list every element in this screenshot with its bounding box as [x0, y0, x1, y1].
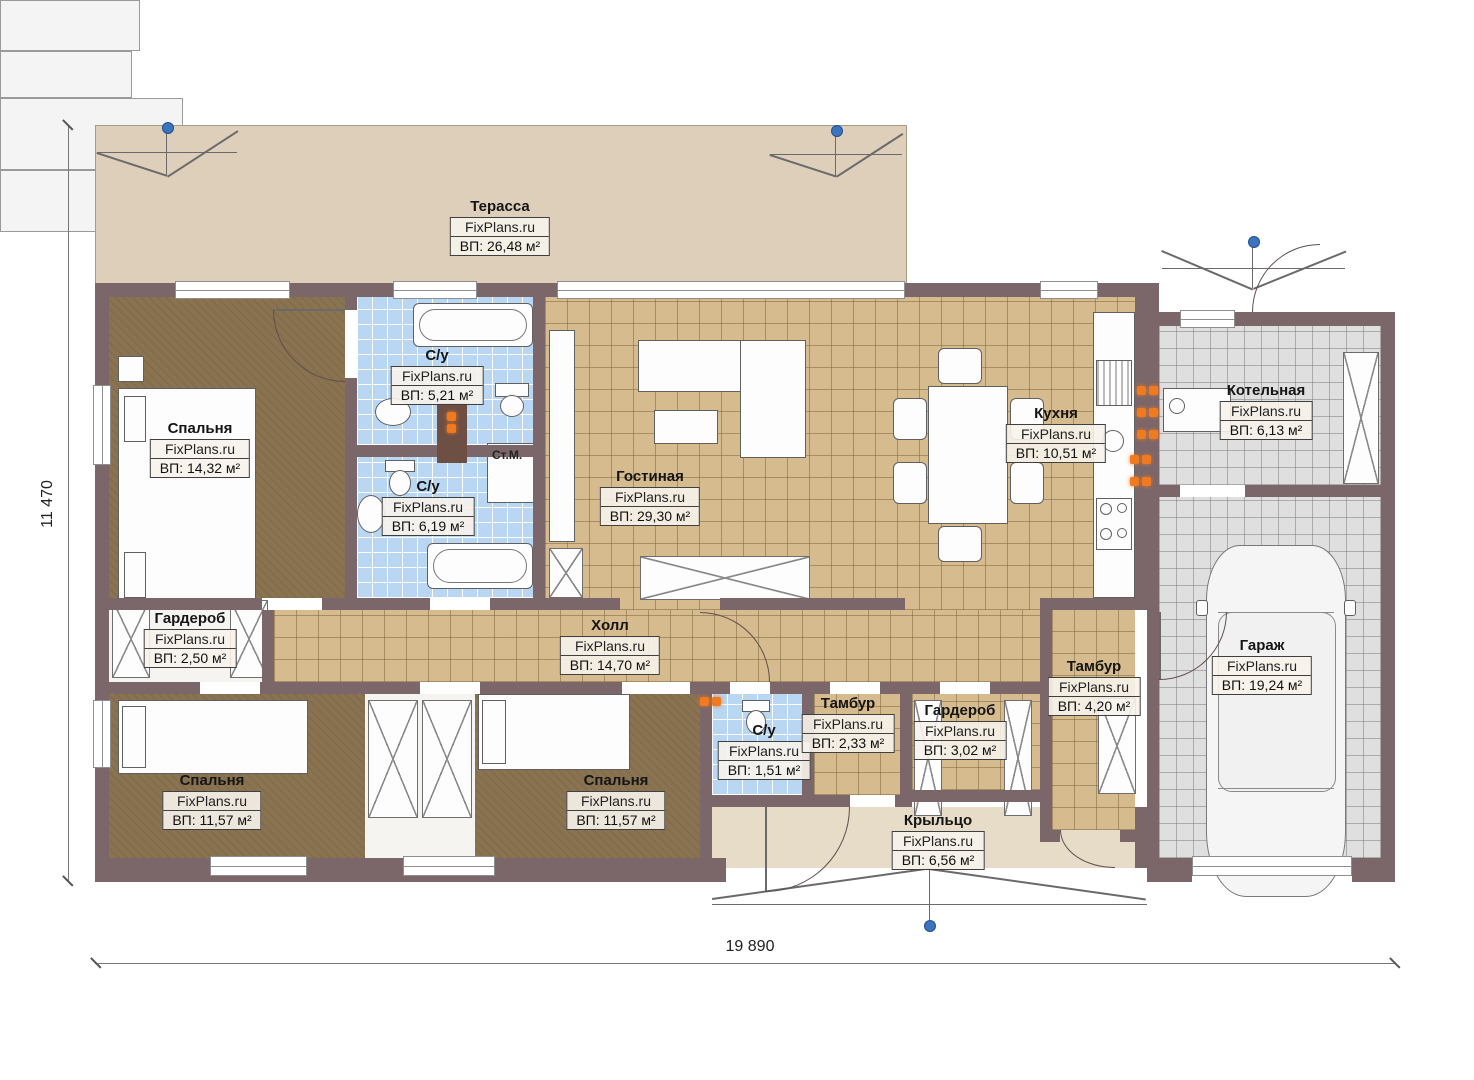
- wall-segment: [712, 795, 814, 807]
- wall-segment: [1120, 830, 1135, 842]
- single-bed: [118, 700, 308, 774]
- room-label-vestibule-2: Тамбур FixPlans.ru ВП: 4,20 м²: [1048, 658, 1141, 716]
- room-name: Спальня: [150, 420, 250, 437]
- wall-segment: [900, 694, 912, 807]
- room-name: Спальня: [162, 772, 261, 789]
- room-label-bath-2: С/у FixPlans.ru ВП: 6,19 м²: [382, 478, 475, 536]
- room-area: ВП: 14,70 м²: [561, 656, 659, 674]
- room-info-box: FixPlans.ru ВП: 6,13 м²: [1220, 401, 1313, 440]
- room-info-box: FixPlans.ru ВП: 14,70 м²: [560, 636, 660, 675]
- room-area: ВП: 11,57 м²: [163, 811, 260, 829]
- window: [210, 856, 307, 876]
- room-label-living-room: Гостиная FixPlans.ru ВП: 29,30 м²: [600, 468, 700, 526]
- canopy-line: [929, 868, 930, 920]
- room-label-boiler-room: Котельная FixPlans.ru ВП: 6,13 м²: [1220, 382, 1313, 440]
- wall-segment: [880, 682, 912, 694]
- room-label-porch: Крыльцо FixPlans.ru ВП: 6,56 м²: [892, 812, 985, 870]
- room-info-box: FixPlans.ru ВП: 10,51 м²: [1006, 424, 1106, 463]
- watermark: FixPlans.ru: [893, 832, 984, 851]
- cabinet: [549, 548, 583, 598]
- watermark: FixPlans.ru: [915, 722, 1006, 741]
- wall-segment: [1381, 312, 1395, 882]
- bathtub: [413, 303, 533, 347]
- pillow: [124, 552, 146, 598]
- window: [175, 281, 290, 299]
- sofa-chaise: [740, 340, 806, 458]
- wall-segment: [345, 297, 357, 310]
- wall-segment: [814, 795, 850, 807]
- watermark: FixPlans.ru: [1213, 657, 1311, 676]
- wall-segment: [1040, 598, 1135, 610]
- room-info-box: FixPlans.ru ВП: 2,33 м²: [802, 714, 895, 753]
- radiator: [1137, 386, 1158, 395]
- wall-segment: [912, 790, 1040, 802]
- room-info-box: FixPlans.ru ВП: 5,21 м²: [391, 366, 484, 405]
- wall-segment: [480, 682, 622, 694]
- wall-segment: [700, 694, 712, 858]
- chair: [938, 526, 982, 562]
- room-info-box: FixPlans.ru ВП: 4,20 м²: [1048, 677, 1141, 716]
- wall-segment: [720, 598, 905, 610]
- wall-segment: [1147, 858, 1192, 882]
- window: [1040, 281, 1098, 299]
- room-area: ВП: 2,33 м²: [803, 734, 894, 752]
- burner: [1100, 503, 1112, 515]
- roof-line: [770, 154, 902, 155]
- wardrobe-cabinet: [368, 700, 418, 818]
- window: [403, 856, 495, 876]
- radiator: [1137, 408, 1158, 417]
- room-name: Терасса: [450, 198, 550, 215]
- wardrobe-cabinet: [422, 700, 472, 818]
- tv-stand: [640, 556, 810, 600]
- wall-segment: [109, 598, 262, 610]
- room-label-terrace: Терасса FixPlans.ru ВП: 26,48 м²: [450, 198, 550, 256]
- roof-mark-left: [0, 0, 140, 51]
- room-info-box: FixPlans.ru ВП: 14,32 м²: [150, 439, 250, 478]
- roof-marker-dot: [924, 920, 936, 932]
- room-name: Спальня: [566, 772, 665, 789]
- canopy-valley-line: [712, 868, 929, 900]
- boiler-dial: [1169, 398, 1185, 414]
- watermark: FixPlans.ru: [561, 637, 659, 656]
- cabinet: [1343, 352, 1379, 484]
- room-name: Гардероб: [144, 610, 237, 627]
- room-area: ВП: 2,50 м²: [145, 649, 236, 667]
- car-rear-window: [1218, 788, 1334, 789]
- dimension-width: 19 890: [705, 938, 795, 956]
- canopy-valley-line: [929, 868, 1146, 900]
- door-arc: [765, 807, 850, 892]
- room-name: С/у: [382, 478, 475, 495]
- room-name: Котельная: [1220, 382, 1313, 399]
- wall-segment: [109, 682, 200, 694]
- room-name: Гараж: [1212, 637, 1312, 654]
- pillow: [482, 700, 506, 764]
- room-name: Кухня: [1006, 405, 1106, 422]
- roof-mark-right: [0, 51, 132, 98]
- watermark: FixPlans.ru: [803, 715, 894, 734]
- dimension-height: 11 470: [39, 464, 57, 544]
- watermark: FixPlans.ru: [163, 792, 260, 811]
- room-area: ВП: 3,02 м²: [915, 741, 1006, 759]
- watermark: FixPlans.ru: [151, 440, 249, 459]
- wall-segment: [895, 795, 912, 807]
- room-info-box: FixPlans.ru ВП: 19,24 м²: [1212, 656, 1312, 695]
- wall-segment: [1135, 807, 1147, 868]
- chair: [938, 348, 982, 384]
- room-area: ВП: 6,56 м²: [893, 851, 984, 869]
- room-name: Гостиная: [600, 468, 700, 485]
- dimension-line-vertical: [68, 125, 69, 882]
- room-area: ВП: 11,57 м²: [567, 811, 664, 829]
- burner: [1117, 503, 1127, 513]
- terrace-glazing: [557, 281, 905, 299]
- window: [93, 700, 111, 768]
- watermark: FixPlans.ru: [1049, 678, 1140, 697]
- canopy-line: [1252, 244, 1253, 288]
- room-area: ВП: 10,51 м²: [1007, 444, 1105, 462]
- room-name: Холл: [560, 617, 660, 634]
- wall-segment: [345, 378, 357, 610]
- watermark: FixPlans.ru: [601, 488, 699, 507]
- fridge: [1096, 360, 1132, 406]
- pillow: [124, 396, 146, 442]
- burner: [1117, 528, 1127, 538]
- floor-plan: Ст.М.: [0, 0, 1474, 1080]
- window: [393, 281, 477, 299]
- pillow: [122, 706, 146, 768]
- room-label-hall: Холл FixPlans.ru ВП: 14,70 м²: [560, 617, 660, 675]
- room-label-garage: Гараж FixPlans.ru ВП: 19,24 м²: [1212, 637, 1312, 695]
- room-area: ВП: 29,30 м²: [601, 507, 699, 525]
- watermark: FixPlans.ru: [145, 630, 236, 649]
- car-windshield: [1218, 612, 1334, 613]
- wall-segment: [1147, 610, 1159, 858]
- roof-line: [166, 127, 167, 176]
- car-mirror: [1344, 600, 1356, 616]
- washing-machine-label: Ст.М.: [492, 448, 522, 462]
- watermark: FixPlans.ru: [392, 367, 483, 386]
- radiator: [447, 412, 456, 433]
- room-area: ВП: 1,51 м²: [719, 761, 810, 779]
- porch-floor: [712, 807, 1040, 868]
- room-name: Тамбур: [1048, 658, 1141, 675]
- room-label-bedroom-1: Спальня FixPlans.ru ВП: 14,32 м²: [150, 420, 250, 478]
- chair: [893, 462, 927, 504]
- wall-segment: [1147, 485, 1180, 497]
- toilet-bowl: [500, 395, 524, 417]
- room-name: Гардероб: [914, 702, 1007, 719]
- room-area: ВП: 4,20 м²: [1049, 697, 1140, 715]
- room-info-box: FixPlans.ru ВП: 6,19 м²: [382, 497, 475, 536]
- room-label-bath-1: С/у FixPlans.ru ВП: 5,21 м²: [391, 347, 484, 405]
- roof-marker-dot: [831, 125, 843, 137]
- watermark: FixPlans.ru: [567, 792, 664, 811]
- room-info-box: FixPlans.ru ВП: 2,50 м²: [144, 629, 237, 668]
- room-info-box: FixPlans.ru ВП: 1,51 м²: [718, 741, 811, 780]
- wall-segment: [95, 283, 109, 882]
- watermark: FixPlans.ru: [719, 742, 810, 761]
- wall-segment: [1352, 858, 1395, 882]
- wall-segment: [262, 610, 274, 682]
- watermark: FixPlans.ru: [383, 498, 474, 517]
- window: [93, 385, 111, 465]
- room-label-bedroom-2: Спальня FixPlans.ru ВП: 11,57 м²: [162, 772, 261, 830]
- radiator: [1130, 455, 1151, 464]
- room-info-box: FixPlans.ru ВП: 29,30 м²: [600, 487, 700, 526]
- chair: [1010, 462, 1044, 504]
- room-label-bath-3: С/у FixPlans.ru ВП: 1,51 м²: [718, 722, 811, 780]
- burner: [1100, 528, 1112, 540]
- nightstand: [118, 356, 144, 382]
- wall-segment: [1135, 283, 1159, 610]
- room-label-bedroom-3: Спальня FixPlans.ru ВП: 11,57 м²: [566, 772, 665, 830]
- wall-segment: [1245, 485, 1395, 497]
- wall-segment: [912, 682, 940, 694]
- room-name: Тамбур: [802, 695, 895, 712]
- room-area: ВП: 5,21 м²: [392, 386, 483, 404]
- room-area: ВП: 6,19 м²: [383, 517, 474, 535]
- watermark: FixPlans.ru: [1221, 402, 1312, 421]
- roof-line: [97, 152, 237, 153]
- room-info-box: FixPlans.ru ВП: 6,56 м²: [892, 831, 985, 870]
- room-info-box: FixPlans.ru ВП: 3,02 м²: [914, 721, 1007, 760]
- wall-segment: [1040, 610, 1052, 842]
- watermark: FixPlans.ru: [451, 218, 549, 237]
- wall-segment: [690, 682, 730, 694]
- shelf-unit: [549, 330, 575, 542]
- wall-segment: [322, 598, 430, 610]
- room-name: Крыльцо: [892, 812, 985, 829]
- wall-segment: [814, 682, 830, 694]
- wall-segment: [1040, 830, 1060, 842]
- room-name: С/у: [391, 347, 484, 364]
- room-area: ВП: 19,24 м²: [1213, 676, 1311, 694]
- bathtub: [427, 543, 533, 589]
- wall-segment: [990, 682, 1040, 694]
- room-area: ВП: 14,32 м²: [151, 459, 249, 477]
- wall-segment: [490, 598, 620, 610]
- radiator: [1130, 477, 1151, 486]
- wall-segment: [260, 682, 420, 694]
- room-info-box: FixPlans.ru ВП: 11,57 м²: [162, 791, 261, 830]
- room-info-box: FixPlans.ru ВП: 26,48 м²: [450, 217, 550, 256]
- radiator: [700, 697, 721, 706]
- room-name: С/у: [718, 722, 811, 739]
- dimension-line-horizontal: [95, 963, 1395, 964]
- watermark: FixPlans.ru: [1007, 425, 1105, 444]
- wall-segment: [770, 682, 814, 694]
- window: [1180, 310, 1235, 328]
- canopy-valley-line: [1161, 250, 1253, 290]
- room-label-wardrobe-1: Гардероб FixPlans.ru ВП: 2,50 м²: [144, 610, 237, 668]
- wall-segment: [533, 297, 545, 610]
- room-info-box: FixPlans.ru ВП: 11,57 м²: [566, 791, 665, 830]
- radiator: [1137, 430, 1158, 439]
- room-label-wardrobe-2: Гардероб FixPlans.ru ВП: 3,02 м²: [914, 702, 1007, 760]
- room-area: ВП: 26,48 м²: [451, 237, 549, 255]
- room-area: ВП: 6,13 м²: [1221, 421, 1312, 439]
- dining-table: [928, 386, 1008, 524]
- roof-marker-dot: [162, 122, 174, 134]
- door-arc: [1252, 244, 1320, 312]
- garage-door-opening: [1192, 856, 1352, 876]
- coffee-table: [654, 410, 718, 444]
- chair: [893, 398, 927, 440]
- room-label-vestibule-1: Тамбур FixPlans.ru ВП: 2,33 м²: [802, 695, 895, 753]
- roof-marker-dot: [1248, 236, 1260, 248]
- room-label-kitchen: Кухня FixPlans.ru ВП: 10,51 м²: [1006, 405, 1106, 463]
